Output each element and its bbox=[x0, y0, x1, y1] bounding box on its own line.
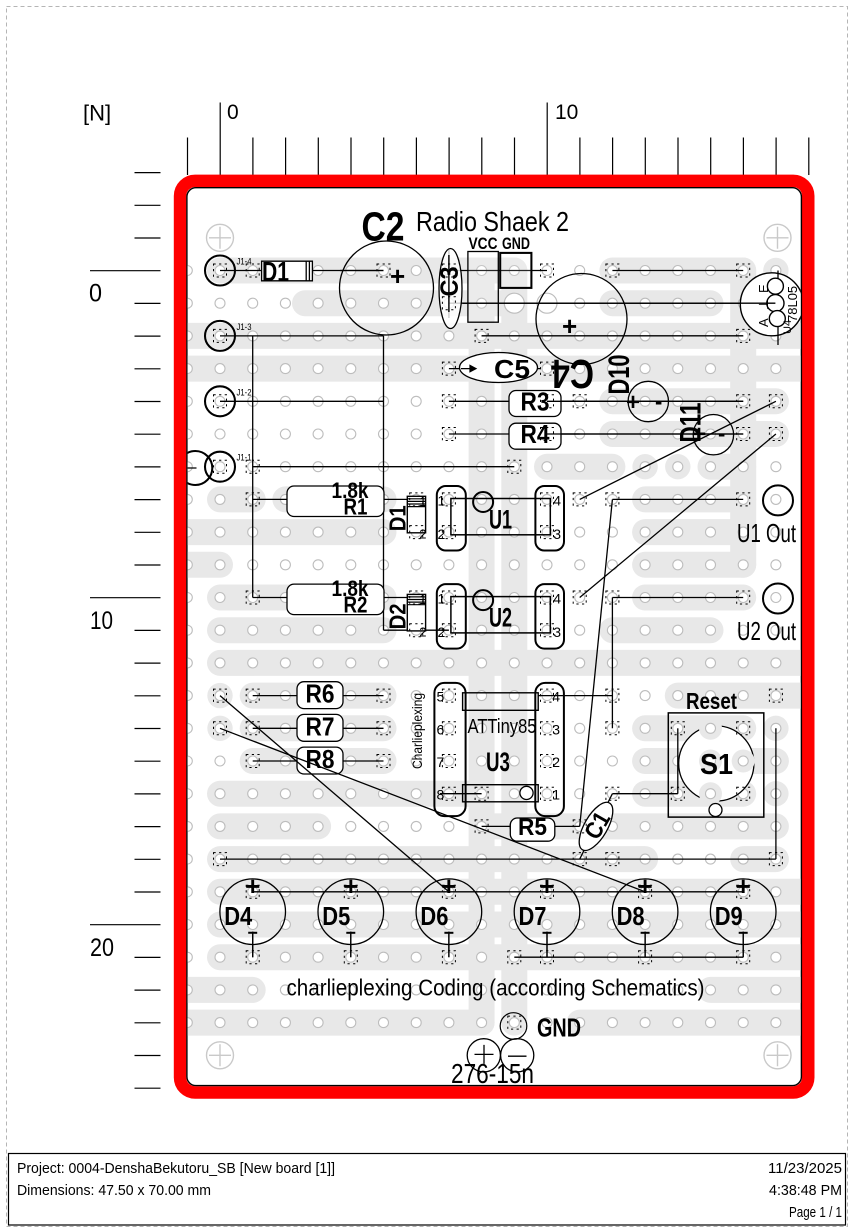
svg-text:4: 4 bbox=[553, 591, 561, 607]
svg-text:A: A bbox=[756, 318, 771, 327]
svg-text:Charlieplexing: Charlieplexing bbox=[410, 693, 425, 769]
svg-text:3: 3 bbox=[552, 721, 560, 737]
svg-text:U2: U2 bbox=[489, 603, 512, 633]
svg-text:S1: S1 bbox=[700, 749, 733, 781]
svg-text:U1: U1 bbox=[489, 504, 512, 534]
svg-text:U4: U4 bbox=[782, 320, 794, 334]
svg-text:8: 8 bbox=[437, 787, 445, 803]
svg-text:D4: D4 bbox=[224, 901, 252, 931]
svg-text:D1: D1 bbox=[262, 256, 289, 287]
svg-text:+: + bbox=[390, 261, 405, 291]
svg-text:2: 2 bbox=[438, 624, 446, 640]
svg-text:[N]: [N] bbox=[83, 101, 111, 126]
svg-text:2: 2 bbox=[419, 625, 426, 640]
svg-text:D7: D7 bbox=[519, 901, 547, 931]
svg-text:1: 1 bbox=[419, 592, 426, 607]
svg-text:D6: D6 bbox=[420, 901, 448, 931]
svg-text:4: 4 bbox=[552, 689, 560, 705]
svg-text:10: 10 bbox=[555, 101, 578, 124]
svg-text:3: 3 bbox=[553, 526, 561, 542]
svg-text:Project: 0004-DenshaBekutoru_S: Project: 0004-DenshaBekutoru_SB [New boa… bbox=[17, 1160, 335, 1177]
svg-text:⊥: ⊥ bbox=[756, 299, 771, 310]
svg-text:4:38:48 PM: 4:38:48 PM bbox=[769, 1182, 842, 1199]
svg-text:U1 Out: U1 Out bbox=[737, 518, 797, 548]
svg-text:VCC: VCC bbox=[469, 234, 498, 253]
svg-text:11/23/2025: 11/23/2025 bbox=[768, 1160, 842, 1177]
svg-text:D5: D5 bbox=[322, 901, 350, 931]
svg-text:GND: GND bbox=[537, 1013, 581, 1043]
svg-text:R2: R2 bbox=[344, 592, 368, 618]
svg-text:R7: R7 bbox=[306, 711, 335, 741]
svg-text:Dimensions: 47.50 x 70.00 mm: Dimensions: 47.50 x 70.00 mm bbox=[17, 1182, 211, 1199]
svg-text:R8: R8 bbox=[306, 744, 335, 774]
svg-text:Radio Shaek 2: Radio Shaek 2 bbox=[416, 206, 569, 237]
svg-text:+: + bbox=[343, 871, 358, 901]
svg-text:E: E bbox=[756, 284, 771, 293]
svg-text:R3: R3 bbox=[521, 387, 550, 417]
svg-text:+: + bbox=[626, 389, 640, 416]
svg-text:0: 0 bbox=[89, 280, 102, 308]
svg-text:D8: D8 bbox=[617, 901, 645, 931]
svg-text:D2: D2 bbox=[384, 603, 410, 629]
svg-text:J1-1: J1-1 bbox=[237, 453, 252, 464]
svg-text:10: 10 bbox=[90, 607, 113, 635]
svg-text:ATTiny85: ATTiny85 bbox=[468, 716, 537, 738]
svg-text:276-15n: 276-15n bbox=[451, 1058, 534, 1089]
svg-text:U3: U3 bbox=[486, 747, 510, 777]
svg-text:78L05: 78L05 bbox=[785, 286, 800, 322]
svg-text:J1-3: J1-3 bbox=[237, 322, 252, 333]
svg-text:J1-4: J1-4 bbox=[237, 257, 252, 268]
svg-text:R6: R6 bbox=[306, 679, 335, 709]
svg-text:J1-2: J1-2 bbox=[237, 387, 252, 398]
svg-text:charlieplexing Coding (accordi: charlieplexing Coding (according Schemat… bbox=[287, 975, 705, 1001]
svg-text:+: + bbox=[245, 871, 260, 901]
svg-text:R5: R5 bbox=[518, 814, 547, 841]
svg-text:1: 1 bbox=[438, 591, 446, 607]
svg-text:20: 20 bbox=[90, 934, 114, 962]
svg-text:C5: C5 bbox=[494, 354, 530, 384]
svg-text:Reset: Reset bbox=[686, 688, 737, 714]
svg-text:2: 2 bbox=[552, 754, 560, 770]
svg-text:1: 1 bbox=[438, 492, 446, 508]
svg-text:2: 2 bbox=[419, 527, 426, 542]
svg-text:U2 Out: U2 Out bbox=[737, 616, 797, 646]
svg-text:R1: R1 bbox=[344, 494, 368, 520]
svg-text:1: 1 bbox=[419, 494, 426, 509]
svg-text:C4: C4 bbox=[551, 351, 594, 397]
svg-text:C2: C2 bbox=[362, 204, 405, 250]
svg-text:7: 7 bbox=[437, 754, 445, 770]
svg-text:+: + bbox=[441, 871, 456, 901]
svg-text:C3: C3 bbox=[436, 267, 464, 297]
svg-text:R4: R4 bbox=[521, 419, 550, 449]
svg-text:5: 5 bbox=[437, 689, 445, 705]
svg-text:+: + bbox=[539, 871, 554, 901]
svg-text:Page 1 / 1: Page 1 / 1 bbox=[789, 1204, 842, 1221]
svg-text:+: + bbox=[638, 871, 653, 901]
svg-text:2: 2 bbox=[438, 526, 446, 542]
svg-text:D1: D1 bbox=[384, 505, 410, 531]
svg-text:GND: GND bbox=[502, 234, 530, 253]
svg-text:6: 6 bbox=[437, 721, 445, 737]
svg-text:3: 3 bbox=[553, 624, 561, 640]
svg-text:D9: D9 bbox=[715, 901, 743, 931]
svg-text:+: + bbox=[736, 871, 751, 901]
svg-text:1: 1 bbox=[552, 787, 560, 803]
svg-text:0: 0 bbox=[227, 101, 239, 124]
svg-text:4: 4 bbox=[553, 492, 561, 508]
